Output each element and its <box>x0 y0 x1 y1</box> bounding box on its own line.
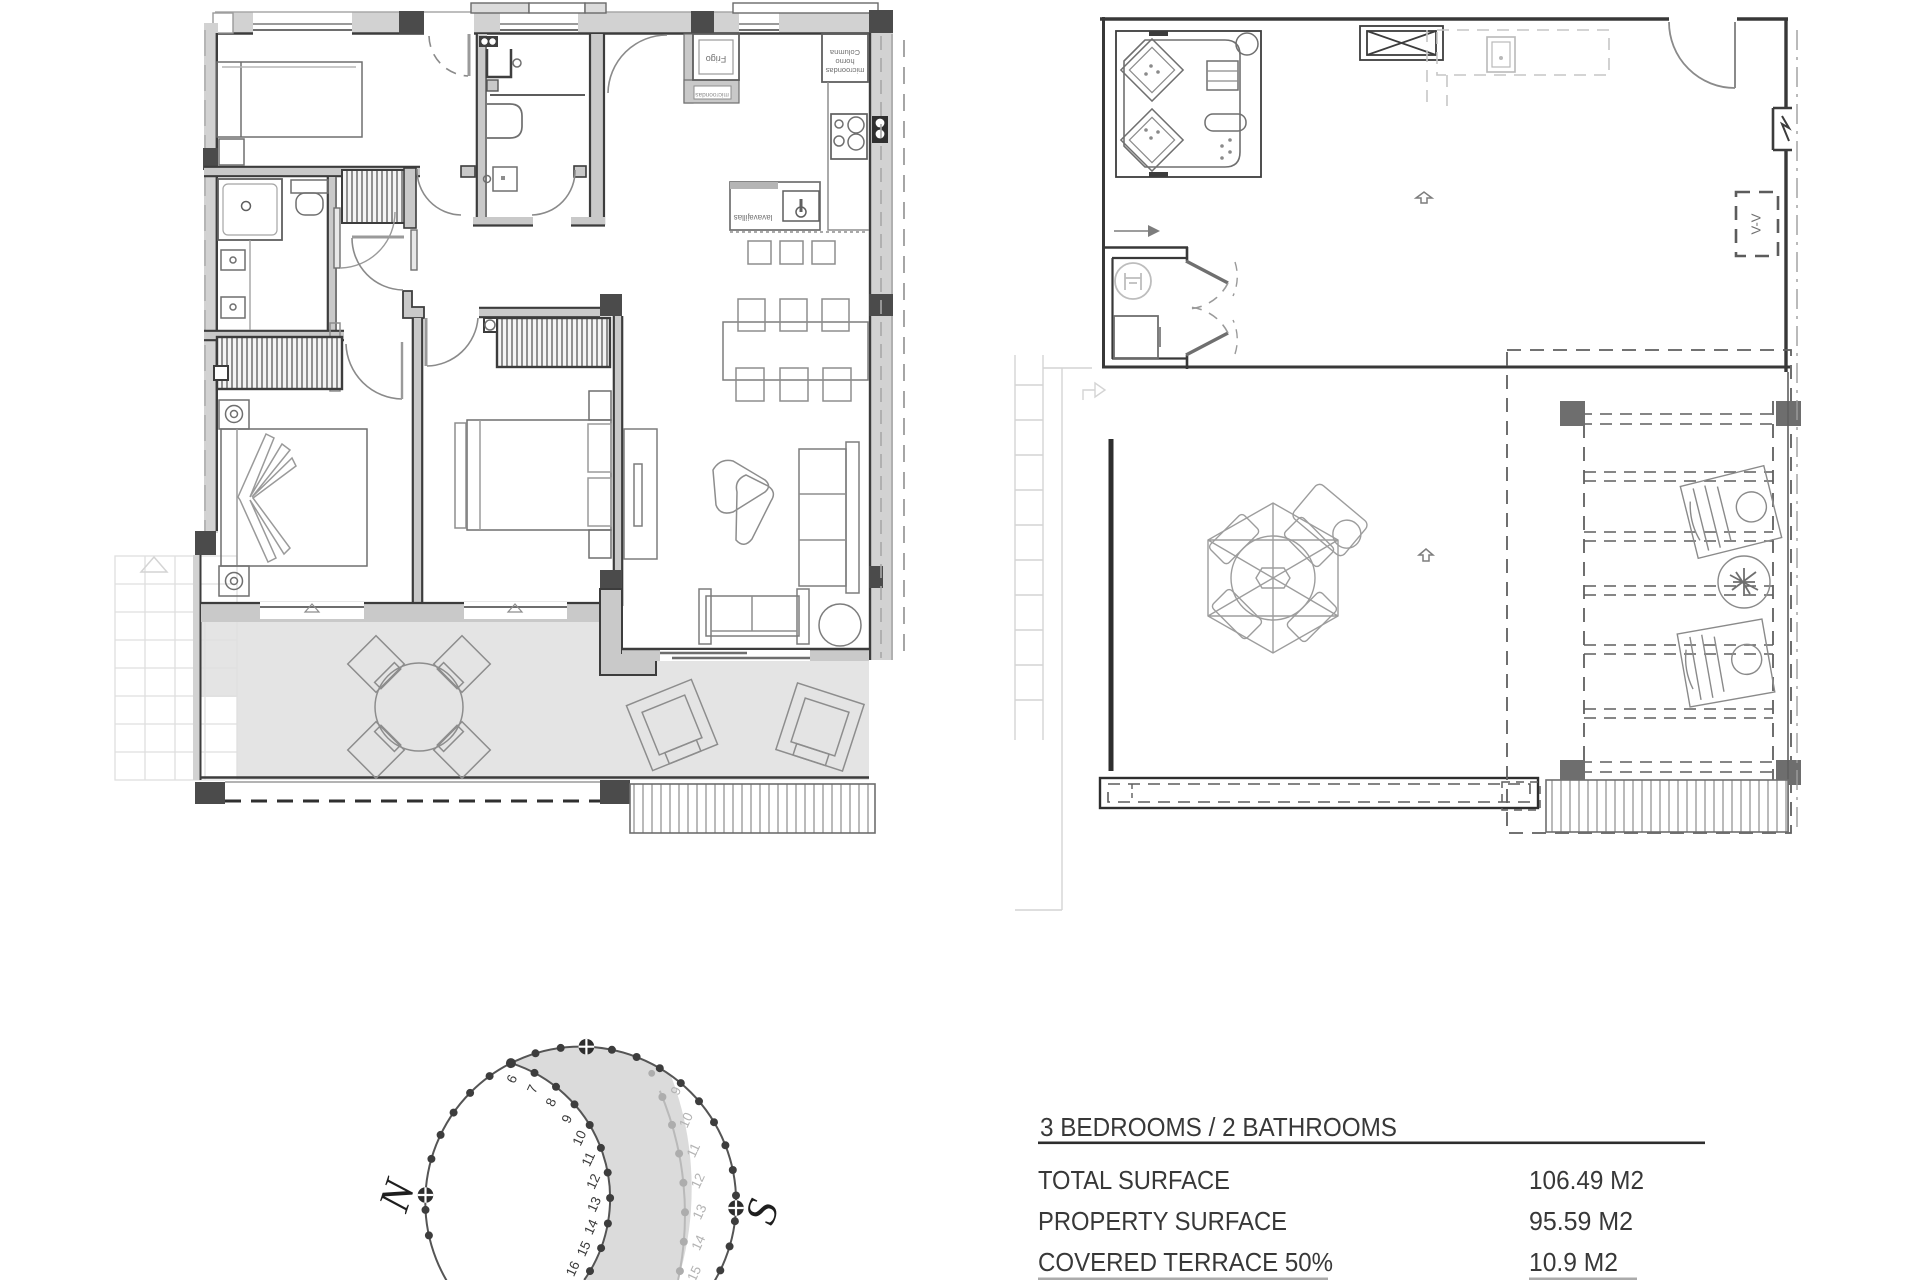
svg-text:10.9 M2: 10.9 M2 <box>1529 1247 1618 1277</box>
svg-text:microondas: microondas <box>694 91 728 98</box>
svg-text:Frigo: Frigo <box>706 54 727 64</box>
svg-text:3 BEDROOMS / 2 BATHROOMS: 3 BEDROOMS / 2 BATHROOMS <box>1040 1112 1397 1142</box>
svg-text:horno: horno <box>835 57 854 66</box>
svg-text:Columna: Columna <box>829 48 860 57</box>
svg-text:PROPERTY SURFACE: PROPERTY SURFACE <box>1038 1206 1287 1236</box>
svg-text:lavavajillas: lavavajillas <box>734 213 773 222</box>
svg-text:microondas: microondas <box>825 66 864 75</box>
svg-text:95.59 M2: 95.59 M2 <box>1529 1206 1633 1236</box>
svg-text:TOTAL SURFACE: TOTAL SURFACE <box>1038 1165 1230 1195</box>
svg-text:106.49 M2: 106.49 M2 <box>1529 1165 1644 1195</box>
svg-text:COVERED TERRACE 50%: COVERED TERRACE 50% <box>1038 1247 1333 1277</box>
svg-text:V-V: V-V <box>1748 213 1763 234</box>
